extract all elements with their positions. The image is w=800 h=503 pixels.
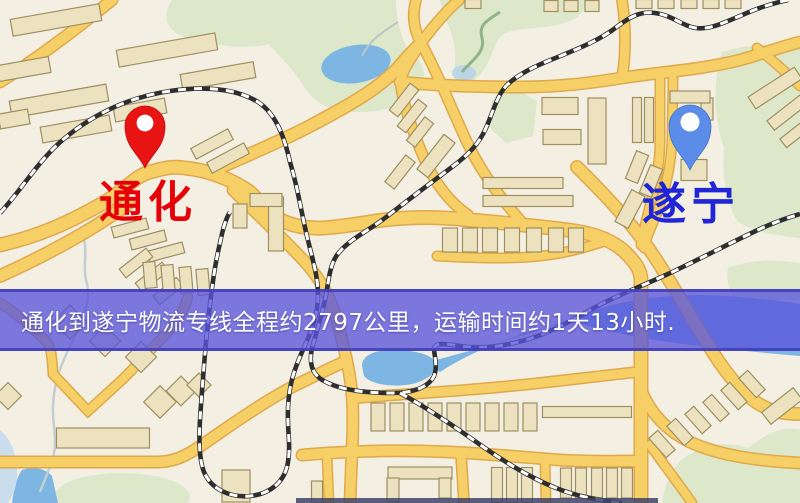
building	[592, 468, 603, 498]
building	[544, 1, 558, 12]
building	[527, 228, 542, 252]
building	[569, 228, 584, 252]
destination-label: 遂宁	[642, 180, 740, 229]
building	[390, 403, 404, 431]
destination-pin-hole	[681, 113, 700, 132]
building	[466, 403, 480, 431]
building	[633, 98, 642, 143]
building	[585, 1, 599, 12]
building	[588, 98, 606, 164]
building	[507, 468, 518, 503]
bottom-edge-shadow	[296, 498, 658, 503]
building	[543, 130, 581, 145]
building	[161, 265, 175, 292]
building	[670, 91, 710, 103]
building	[57, 428, 150, 448]
building	[564, 1, 578, 12]
building	[622, 468, 633, 498]
building	[504, 403, 518, 431]
building	[492, 468, 503, 503]
building	[505, 228, 520, 252]
building	[143, 262, 157, 289]
road-segment	[327, 456, 329, 503]
pond	[452, 65, 476, 81]
building	[483, 228, 498, 252]
building	[549, 228, 564, 252]
building	[703, 0, 719, 9]
map-screenshot: 通化 遂宁 通化到遂宁物流专线全程约2797公里，运输时间约1天13小时.	[0, 0, 800, 503]
road-segment	[622, 0, 625, 78]
building	[250, 194, 282, 207]
building	[658, 0, 674, 9]
building	[542, 98, 578, 115]
building	[443, 228, 458, 252]
misc-layer	[296, 498, 658, 503]
building	[233, 204, 247, 228]
route-info-text: 通化到遂宁物流专线全程约2797公里，运输时间约1天13小时.	[21, 303, 675, 337]
building	[607, 468, 618, 498]
origin-label: 通化	[99, 178, 197, 227]
road-segment	[461, 454, 464, 503]
map-canvas: 通化 遂宁	[0, 0, 800, 503]
building	[463, 228, 478, 252]
building	[636, 0, 652, 9]
building	[485, 403, 499, 431]
building	[483, 178, 563, 189]
building	[465, 0, 481, 9]
building	[725, 0, 741, 9]
building	[483, 196, 573, 207]
building	[439, 478, 451, 498]
building	[543, 407, 632, 418]
building	[371, 403, 385, 431]
building	[388, 467, 452, 479]
building	[681, 0, 697, 9]
building	[523, 403, 537, 431]
building	[645, 98, 654, 143]
route-info-banner: 通化到遂宁物流专线全程约2797公里，运输时间约1天13小时.	[0, 289, 800, 351]
origin-pin-hole	[137, 115, 154, 132]
